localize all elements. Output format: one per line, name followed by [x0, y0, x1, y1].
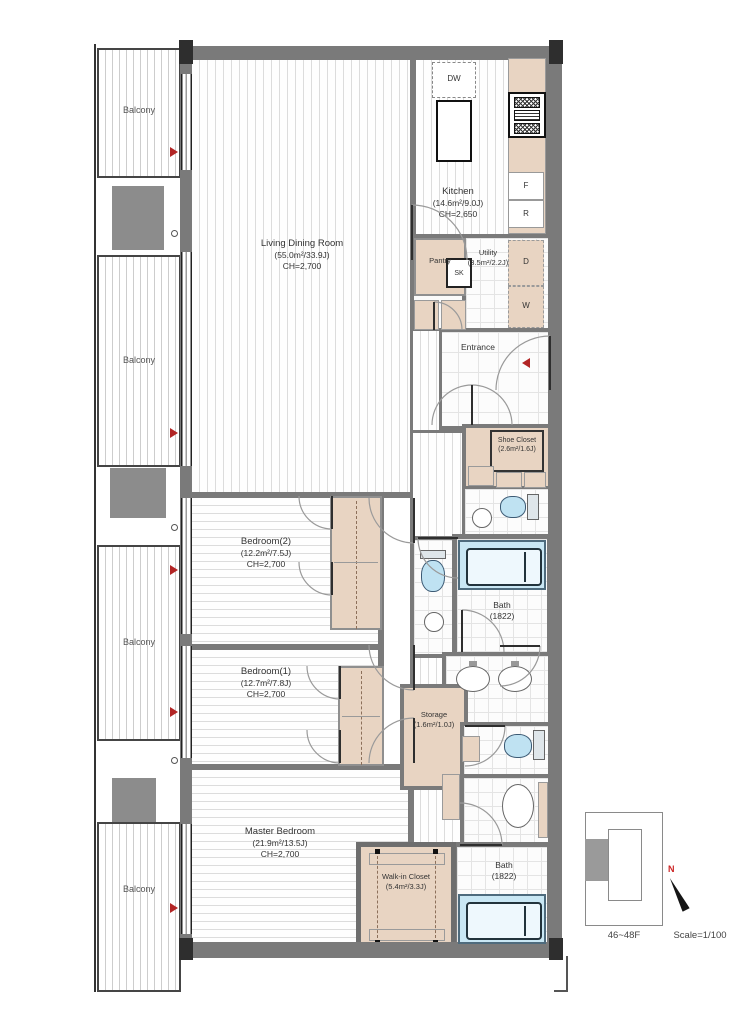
outer-wall-right [548, 46, 562, 958]
powder-basin-icon [502, 784, 534, 828]
room-area: (21.9m²/13.5J) [190, 838, 370, 849]
room-size: (1822) [468, 611, 536, 622]
room-ceiling: CH=2,700 [202, 261, 402, 272]
wic-hanger-rail [377, 851, 378, 943]
walkin-closet-label: Walk-in Closet (5.4m²/3.3J) [370, 872, 442, 892]
wic-shelf-top [369, 853, 445, 865]
wall-cap [549, 40, 563, 64]
direction-marker-icon [170, 903, 178, 913]
tub-divider [524, 906, 526, 936]
balcony-3-label: Balcony [99, 637, 179, 649]
north-indicator: N [660, 862, 720, 922]
vanity-sink-icon [498, 666, 532, 692]
room-area: (2.6m²/1.6J) [491, 445, 543, 454]
direction-marker-icon [170, 147, 178, 157]
dishwasher-label: DW [433, 74, 475, 84]
room-area: (14.6m²/9.0J) [408, 198, 508, 209]
room-name: Entrance [440, 342, 516, 353]
balcony-4: Balcony [97, 822, 181, 992]
linen-cabinet [442, 774, 460, 820]
refrigerator-label: R [509, 209, 543, 219]
closet-divider [342, 716, 380, 717]
shoe-shelf [524, 472, 546, 488]
hall-cabinet [414, 300, 439, 330]
bedroom1-label: Bedroom(1) (12.7m²/7.8J) CH=2,700 [196, 666, 336, 700]
window [181, 646, 192, 758]
room-ceiling: CH=2,650 [408, 209, 508, 220]
window [181, 74, 192, 170]
key-plan-unit-highlight [585, 839, 609, 881]
closet-divider [334, 562, 378, 563]
balcony-1-label: Balcony [99, 105, 179, 117]
burner-icon [514, 123, 540, 134]
room-name: Bedroom(1) [196, 666, 336, 678]
room-area: (55.0m²/33.9J) [202, 250, 402, 261]
shoe-shelf [496, 472, 522, 488]
powder-counter [538, 782, 548, 838]
room-area: (5.4m²/3.3J) [370, 882, 442, 892]
walkin-closet-room [356, 842, 456, 952]
window [181, 252, 192, 466]
shoe-shelf [468, 466, 494, 486]
scale-label: Scale=1/100 [664, 930, 736, 942]
toilet2-cabinet [462, 736, 480, 762]
slop-sink-label: SK [448, 269, 470, 278]
closet-rail [356, 501, 357, 629]
toilet-icon [500, 496, 526, 518]
room-name: Kitchen [408, 186, 508, 198]
refrigerator-box: R [508, 200, 544, 228]
hall-cabinet [441, 300, 466, 330]
balcony-outer-edge [94, 44, 96, 992]
room-area: (12.2m²/7.5J) [196, 548, 336, 559]
window [181, 498, 192, 634]
room-name: Shoe Closet [491, 436, 543, 445]
balcony-2: Balcony [97, 255, 181, 467]
outer-wall-bottom [182, 942, 562, 958]
drain-icon [171, 757, 178, 764]
room-name: Walk-in Closet [370, 872, 442, 882]
toilet-tank [533, 730, 545, 760]
room-name: Master Bedroom [190, 826, 370, 838]
room-area: (12.7m²/7.8J) [196, 678, 336, 689]
washbasin-icon [424, 612, 444, 632]
room-ceiling: CH=2,700 [196, 559, 336, 570]
kitchen-island-counter [436, 100, 472, 162]
floor-range-label: 46~48F [583, 930, 665, 942]
master-bedroom-label: Master Bedroom (21.9m²/13.5J) CH=2,700 [190, 826, 370, 860]
bedroom1-closet [338, 666, 384, 766]
toilet-icon [421, 560, 445, 592]
closet-rail [361, 671, 362, 765]
key-plan [585, 812, 663, 926]
room-name: Utility [458, 248, 518, 258]
utility-label: Utility (3.5m²/2.2J) [458, 248, 518, 268]
balcony-4-label: Balcony [99, 884, 179, 896]
direction-marker-icon [170, 565, 178, 575]
outer-wall-top [182, 46, 560, 60]
bathtub-upper-pad [458, 540, 546, 590]
room-ceiling: CH=2,700 [196, 689, 336, 700]
washer-label: W [509, 301, 543, 311]
direction-marker-icon [170, 707, 178, 717]
room-name: Bedroom(2) [196, 536, 336, 548]
floor-plan: Balcony Balcony Balcony Balcony [0, 0, 736, 1024]
key-plan-core [608, 829, 642, 901]
room-area: (3.5m²/2.2J) [458, 258, 518, 268]
shoe-closet-label: Shoe Closet (2.6m²/1.6J) [491, 436, 543, 454]
room-name: Bath [470, 860, 538, 871]
washbasin-icon [472, 508, 492, 528]
living-dining-room [186, 54, 418, 498]
balcony-1: Balcony [97, 48, 181, 178]
room-name: Living Dining Room [202, 238, 402, 250]
balcony-3: Balcony [97, 545, 181, 741]
wall-cap [549, 938, 563, 960]
freezer-box: F [508, 172, 544, 200]
faucet-icon [469, 661, 477, 666]
room-size: (1822) [470, 871, 538, 882]
vanity-sink-icon [456, 666, 490, 692]
bath-lower-label: Bath (1822) [470, 860, 538, 882]
freezer-label: F [509, 181, 543, 191]
faucet-icon [511, 661, 519, 666]
north-label: N [668, 864, 675, 874]
corner-line-v [566, 956, 568, 992]
balcony-divider-block [112, 778, 156, 822]
washer-box: W [508, 286, 544, 328]
bathtub-lower-pad [458, 894, 546, 944]
bathtub-icon [466, 902, 542, 940]
entrance-label: Entrance [440, 342, 516, 353]
toilet-icon [504, 734, 532, 758]
room-ceiling: CH=2,700 [190, 849, 370, 860]
balcony-divider-block [110, 468, 166, 518]
drain-icon [171, 230, 178, 237]
wic-hanger-rail [435, 851, 436, 943]
bath-upper-label: Bath (1822) [468, 600, 536, 622]
direction-marker-icon [170, 428, 178, 438]
wic-rail-end [433, 849, 438, 854]
wic-rail-end [375, 849, 380, 854]
grill-icon [514, 110, 540, 121]
corner-line-h [554, 990, 568, 992]
toilet-tank [527, 494, 539, 520]
toilet-tank [420, 550, 446, 559]
stove [508, 92, 546, 138]
bathtub-icon [466, 548, 542, 586]
north-needle-icon [666, 876, 689, 912]
balcony-divider-block [112, 186, 164, 250]
living-room-label: Living Dining Room (55.0m²/33.9J) CH=2,7… [202, 238, 402, 272]
bedroom2-label: Bedroom(2) (12.2m²/7.5J) CH=2,700 [196, 536, 336, 570]
dishwasher-box: DW [432, 62, 476, 98]
room-name: Bath [468, 600, 536, 611]
storage-label: Storage (1.6m²/1.0J) [402, 710, 466, 730]
bedroom2-closet [330, 496, 382, 630]
drain-icon [171, 524, 178, 531]
room-area: (1.6m²/1.0J) [402, 720, 466, 730]
wall-cap [179, 40, 193, 64]
entrance-marker-icon [522, 358, 530, 368]
wall-cap [179, 938, 193, 960]
kitchen-label: Kitchen (14.6m²/9.0J) CH=2,650 [408, 186, 508, 220]
tub-divider [524, 552, 526, 582]
hallway-upper [410, 328, 442, 436]
burner-icon [514, 97, 540, 108]
room-name: Storage [402, 710, 466, 720]
balcony-2-label: Balcony [99, 355, 179, 367]
